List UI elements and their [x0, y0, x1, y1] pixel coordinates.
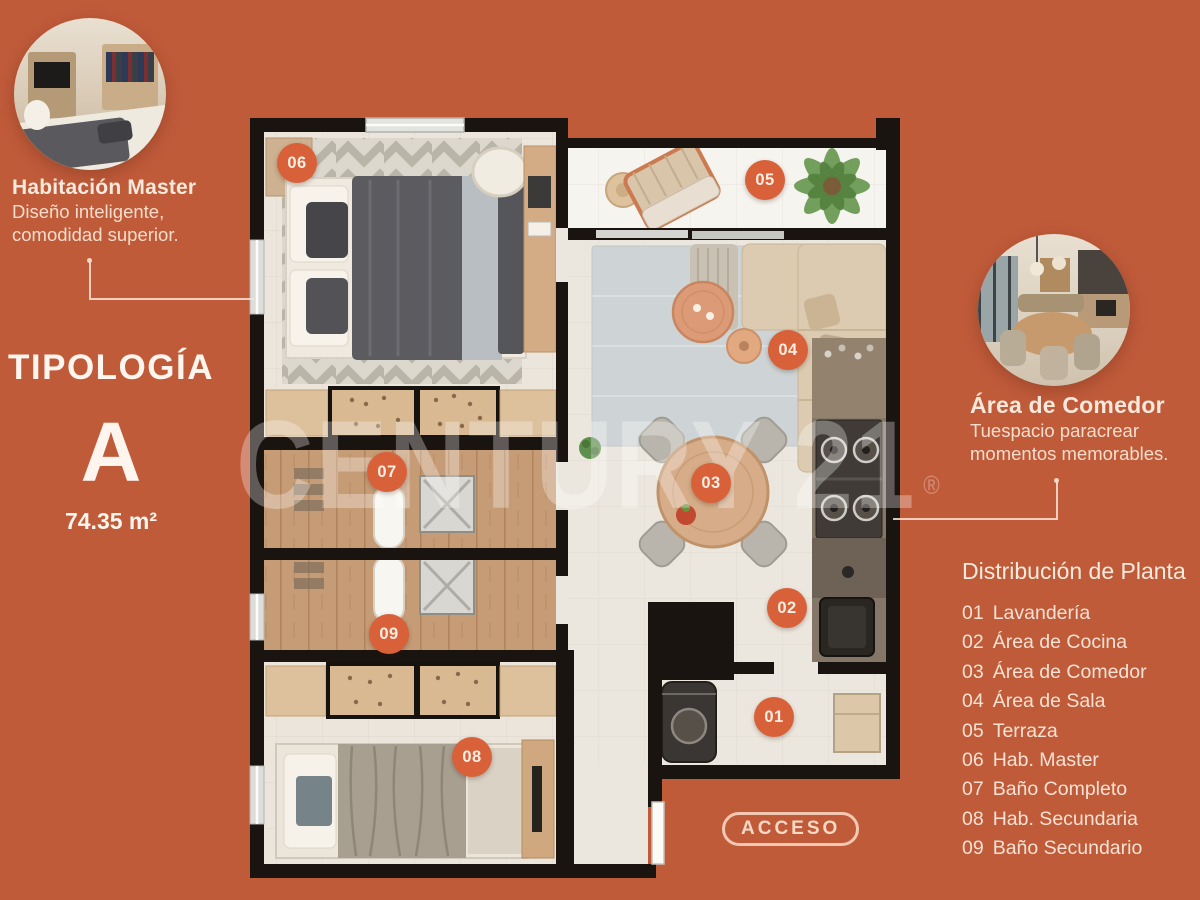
legend-item: 02Área de Cocina [962, 628, 1186, 657]
laptop [528, 176, 551, 208]
badge-cocina: 02 [767, 588, 807, 628]
washer-drum [672, 709, 706, 743]
dining-area-photo [978, 234, 1130, 386]
dining-connector-dot [1054, 478, 1059, 483]
badge-comedor: 03 [691, 463, 731, 503]
master-bedroom-photo [14, 18, 166, 170]
laundry-unit [834, 694, 880, 752]
dining-callout-line1: Tuespacio paracrear [970, 419, 1200, 442]
photo-chair [1074, 334, 1100, 370]
photo-pendant-lights [1030, 262, 1044, 276]
legend: Distribución de Planta 01Lavandería 02Ár… [962, 558, 1186, 864]
terrace-plant [794, 148, 870, 224]
legend-item: 03Área de Comedor [962, 658, 1186, 687]
column [648, 602, 734, 680]
room-master-bedroom [266, 138, 556, 437]
bathroom-07-floor [264, 450, 556, 548]
badge-hab-secundaria: 08 [452, 737, 492, 777]
photo-chair [1040, 346, 1068, 380]
bathroom-09-floor [264, 560, 556, 650]
badge-terraza: 05 [745, 160, 785, 200]
master-connector-line [89, 262, 254, 300]
dining-callout-title: Área de Comedor [970, 392, 1200, 419]
legend-item: 05Terraza [962, 717, 1186, 746]
typology-block: TIPOLOGÍA A 74.35 m² [0, 348, 222, 535]
badge-sala: 04 [768, 330, 808, 370]
bedroom-chair [473, 148, 527, 196]
small-plant [579, 437, 601, 459]
faucet [842, 566, 854, 578]
dining-callout: Área de Comedor Tuespacio paracrear mome… [970, 392, 1200, 465]
master-callout-line2: comodidad superior. [12, 223, 242, 246]
master-connector-dot [87, 258, 92, 263]
vanity-09 [374, 556, 404, 622]
badge-bano-secundario: 09 [369, 614, 409, 654]
master-callout-line1: Diseño inteligente, [12, 200, 242, 223]
legend-item: 06Hab. Master [962, 746, 1186, 775]
legend-item: 08Hab. Secundaria [962, 805, 1186, 834]
room-kitchen [812, 338, 886, 662]
badge-hab-master: 06 [277, 143, 317, 183]
room-secondary-bedroom [266, 664, 556, 858]
badge-lavanderia: 01 [754, 697, 794, 737]
typology-area: 74.35 m² [0, 508, 222, 535]
dining-connector-line [893, 482, 1058, 520]
legend-item: 09Baño Secundario [962, 834, 1186, 863]
legend-item: 04Área de Sala [962, 687, 1186, 716]
photo-cabinets [1078, 250, 1130, 294]
legend-item: 01Lavandería [962, 599, 1186, 628]
flyer-canvas: { "colors":{"background":"#c05b3a","badg… [0, 0, 1200, 900]
master-closet [266, 388, 556, 437]
secondary-closet [266, 664, 556, 717]
typology-label: TIPOLOGÍA [0, 348, 222, 388]
photo-sofa [1018, 294, 1084, 312]
badge-bano-completo: 07 [367, 452, 407, 492]
master-callout: Habitación Master Diseño inteligente, co… [12, 176, 242, 246]
photo-chair [24, 100, 50, 130]
tv [532, 766, 542, 832]
typology-letter: A [0, 410, 222, 494]
legend-item: 07Baño Completo [962, 775, 1186, 804]
master-bed [286, 176, 526, 360]
entry-door-leaf [652, 802, 664, 864]
photo-art [1040, 258, 1070, 292]
photo-chair [1000, 330, 1026, 366]
dining-callout-line2: momentos memorables. [970, 442, 1200, 465]
master-callout-title: Habitación Master [12, 176, 242, 200]
legend-title: Distribución de Planta [962, 558, 1186, 585]
acceso-label: ACCESO [722, 812, 859, 846]
vanity-07 [374, 486, 404, 548]
